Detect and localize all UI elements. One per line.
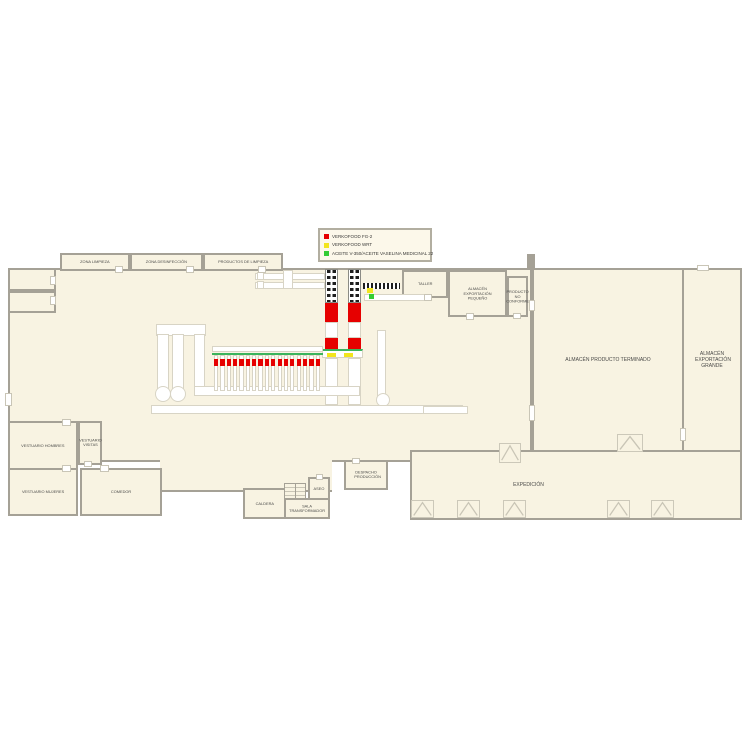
pipe-vertical[interactable] (157, 334, 169, 389)
legend-row: ACEITE V-350/ACEITE VASELINA MEDICINAL 2… (324, 250, 426, 257)
legend-row: VERKOFOOD WRT (324, 242, 426, 249)
filling-column-red-marker (290, 359, 294, 366)
pipe-vertical[interactable] (194, 334, 205, 390)
room-left-lower[interactable] (8, 291, 56, 313)
legend: VERKOFOOD FG-2 VERKOFOOD WRT ACEITE V-35… (318, 228, 432, 262)
door[interactable] (352, 458, 360, 464)
room-almacen-exportacion-pequeno[interactable]: ALMACÉN EXPORTACIÓN PEQUEÑO (448, 270, 507, 317)
filling-column-red-marker (227, 359, 231, 366)
legend-swatch-red (324, 234, 329, 239)
tower-column[interactable] (325, 358, 338, 405)
room-label: ZONA LIMPIEZA (80, 260, 109, 265)
filling-column-red-marker (214, 359, 218, 366)
filling-column-red-marker (271, 359, 275, 366)
tower-ladder[interactable] (325, 269, 338, 303)
tower-red-segment (325, 303, 338, 322)
yellow-marker (367, 288, 373, 293)
loading-dock (499, 443, 521, 463)
room-label: DESPACHO PRODUCCIÓN (354, 470, 377, 479)
tank-circle[interactable] (155, 386, 171, 402)
room-label: ALMACÉN PRODUCTO TERMINADO (565, 357, 650, 363)
room-left-upper[interactable] (8, 268, 56, 291)
filling-column-red-marker (258, 359, 262, 366)
room-label: VESTUARIO MUJERES (22, 490, 64, 495)
filling-column-red-marker (233, 359, 237, 366)
tower-ladder[interactable] (348, 269, 361, 303)
room-sala-transformador[interactable]: SALA TRANSFORMADOR (284, 498, 330, 519)
filling-column-red-marker (309, 359, 313, 366)
door[interactable] (50, 276, 56, 285)
tank-circle[interactable] (170, 386, 186, 402)
door[interactable] (529, 300, 535, 311)
door[interactable] (100, 465, 109, 472)
floor-plan: ZONA LIMPIEZA ZONA DESINFECCIÓN PRODUCTO… (0, 0, 750, 750)
loading-dock (651, 500, 674, 518)
door[interactable] (466, 313, 474, 320)
door[interactable] (5, 393, 12, 406)
door[interactable] (186, 266, 194, 273)
room-label: ALMACÉN EXPORTACIÓN GRANDE (695, 351, 729, 369)
filling-column-red-marker (316, 359, 320, 366)
room-label: COMEDOR (111, 490, 131, 495)
room-comedor[interactable]: COMEDOR (80, 468, 162, 516)
room-vestuario-mujeres[interactable]: VESTUARIO MUJERES (8, 468, 78, 516)
filling-column-red-marker (252, 359, 256, 366)
tower-white-segment (348, 322, 361, 338)
legend-label: ACEITE V-350/ACEITE VASELINA MEDICINAL 2… (332, 251, 433, 256)
yellow-marker (344, 353, 353, 357)
room-label: SALA TRANSFORMADOR (289, 504, 325, 513)
side-column[interactable] (377, 330, 386, 398)
room-label: EXPEDICIÓN (513, 482, 544, 488)
filling-column-red-marker (303, 359, 307, 366)
legend-swatch-yellow (324, 243, 329, 248)
pipe-vertical[interactable] (172, 334, 184, 389)
door[interactable] (316, 474, 323, 480)
door[interactable] (115, 266, 123, 273)
legend-label: VERKOFOOD FG-2 (332, 234, 372, 239)
room-vestuario-visitas[interactable]: VESTUARIO VISITAS (78, 421, 102, 465)
door[interactable] (62, 419, 71, 426)
tower-column[interactable] (348, 358, 361, 405)
tower-white-segment (325, 322, 338, 338)
conveyor[interactable] (151, 405, 463, 414)
filling-column-red-marker (246, 359, 250, 366)
legend-label: VERKOFOOD WRT (332, 242, 372, 247)
room-label: ASEO (314, 486, 325, 491)
legend-swatch-green (324, 251, 329, 256)
loading-dock (503, 500, 526, 518)
rail-block[interactable] (283, 270, 293, 289)
room-label: VESTUARIO HOMBRES (21, 443, 64, 448)
door[interactable] (529, 405, 535, 421)
filling-line-bar[interactable] (212, 346, 323, 352)
room-label: PRODUCTO NO CONFORME (506, 289, 529, 303)
room-label: TALLER (418, 282, 432, 287)
filling-column-red-marker (265, 359, 269, 366)
room-vestuario-hombres[interactable]: VESTUARIO HOMBRES (8, 421, 78, 470)
room-label: VESTUARIO VISITAS (79, 438, 102, 447)
filling-column-red-marker (220, 359, 224, 366)
door[interactable] (258, 266, 266, 273)
door[interactable] (84, 461, 92, 467)
tower-red-segment (348, 303, 361, 322)
door[interactable] (62, 465, 71, 472)
door[interactable] (680, 428, 686, 441)
filling-column-red-marker (239, 359, 243, 366)
loading-dock (411, 500, 434, 518)
room-aseo[interactable]: ASEO (308, 477, 330, 500)
door[interactable] (50, 296, 56, 305)
conveyor[interactable] (423, 406, 468, 414)
loading-dock (457, 500, 480, 518)
room-despacho-produccion[interactable]: DESPACHO PRODUCCIÓN (344, 460, 388, 490)
door[interactable] (697, 265, 709, 271)
room-label: PRODUCTOS DE LIMPIEZA (218, 260, 268, 265)
filling-column-red-marker (284, 359, 288, 366)
room-almacen-exportacion-grande[interactable]: ALMACÉN EXPORTACIÓN GRANDE (682, 268, 742, 452)
room-label: ZONA DESINFECCIÓN (146, 260, 187, 265)
legend-row: VERKOFOOD FG-2 (324, 233, 426, 240)
rail-carriage[interactable] (257, 272, 264, 280)
room-label: ALMACÉN EXPORTACIÓN PEQUEÑO (456, 286, 499, 300)
loading-dock (607, 500, 630, 518)
loading-dock (617, 434, 643, 452)
room-productos-limpieza[interactable]: PRODUCTOS DE LIMPIEZA (203, 253, 283, 271)
room-producto-no-conforme[interactable]: PRODUCTO NO CONFORME (507, 276, 528, 317)
filling-column-red-marker (297, 359, 301, 366)
room-almacen-producto-terminado[interactable]: ALMACÉN PRODUCTO TERMINADO (532, 268, 684, 452)
filling-column-red-marker (278, 359, 282, 366)
green-marker (369, 294, 374, 299)
room-caldera[interactable]: CALDERA (243, 488, 286, 519)
door[interactable] (424, 294, 432, 301)
room-label: CALDERA (255, 501, 273, 506)
rail-carriage[interactable] (257, 281, 264, 289)
door[interactable] (513, 313, 521, 319)
yellow-marker (327, 353, 336, 357)
